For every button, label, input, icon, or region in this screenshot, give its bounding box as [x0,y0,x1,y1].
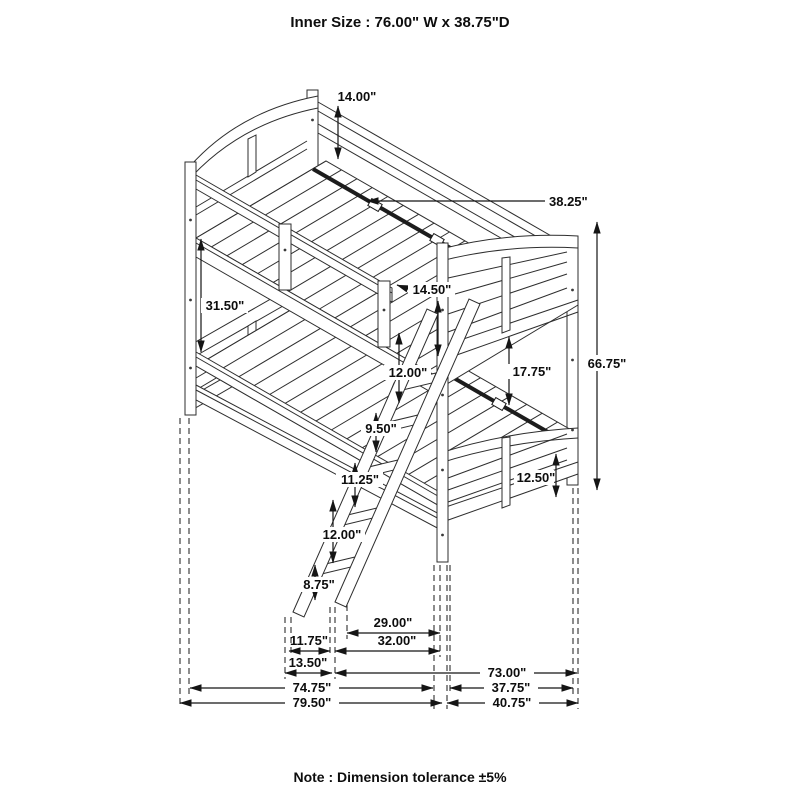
guard-rail-post [279,224,291,290]
svg-text:73.00": 73.00" [488,665,527,680]
dim-deck-depth: 38.25" [549,194,588,209]
guard-rail-post [378,281,390,347]
dim-ladder-step-5: 8.75" [299,577,339,592]
inner-size-title: Inner Size : 76.00" W x 38.75"D [290,14,509,31]
dim-bunk-gap: 31.50" [201,298,248,313]
footboard-stile [502,437,510,508]
dim-ladder-clear-outer: 32.00" [378,633,417,648]
dim-guard-rail-height: 14.50" [408,282,455,297]
svg-text:17.75": 17.75" [513,364,552,379]
dim-ladder-step-1: 12.00" [384,365,431,380]
dim-overall-height: 66.75" [583,355,631,371]
dim-overall-length: 79.50" [285,695,339,710]
dim-depth-inner: 37.75" [484,680,538,695]
dim-ladder-step-2: 9.50" [361,421,401,436]
svg-text:12.00": 12.00" [323,527,362,542]
svg-text:79.50": 79.50" [293,695,332,710]
dim-overall-depth: 40.75" [485,695,539,710]
svg-text:13.50": 13.50" [289,655,328,670]
svg-text:11.75": 11.75" [290,633,328,648]
svg-text:29.00": 29.00" [374,615,413,630]
svg-text:12.50": 12.50" [517,470,556,485]
svg-text:74.75": 74.75" [293,680,332,695]
dim-ladder-depth-outer: 13.50" [289,655,328,670]
dim-back-rail-height: 14.00" [334,89,381,104]
svg-text:12.00": 12.00" [389,365,428,380]
svg-text:14.00": 14.00" [338,89,377,104]
svg-text:8.75": 8.75" [303,577,334,592]
footboard-stile [502,257,510,333]
dim-length-ladder-to-back: 73.00" [480,665,534,680]
headboard-stile [248,135,256,177]
svg-text:37.75": 37.75" [492,680,531,695]
dim-ladder-clear-inner: 29.00" [374,615,413,630]
svg-text:31.50": 31.50" [206,298,245,313]
tolerance-note: Note : Dimension tolerance ±5% [293,769,507,785]
svg-text:66.75": 66.75" [588,356,627,371]
svg-text:14.50": 14.50" [413,282,452,297]
bunk-bed-dimension-diagram: Inner Size : 76.00" W x 38.75"D [0,0,800,800]
svg-text:32.00": 32.00" [378,633,417,648]
svg-text:40.75": 40.75" [493,695,532,710]
dim-length-inner: 74.75" [285,680,339,695]
upper-footboard [437,235,578,390]
svg-text:11.25": 11.25" [341,472,379,487]
dim-ladder-step-4: 12.00" [318,527,365,542]
svg-text:9.50": 9.50" [365,421,396,436]
head-front-post [185,162,196,415]
dim-ladder-step-3: 11.25" [336,472,383,487]
dim-floor-clearance: 12.50" [514,470,555,485]
dim-mattress-clearance: 17.75" [508,364,556,379]
bunk-bed-dimension-diagram-page: Inner Size : 76.00" W x 38.75"D [0,0,800,800]
dim-ladder-depth-inner: 11.75" [290,633,328,648]
bed-structure [185,90,578,617]
svg-text:38.25": 38.25" [549,194,588,209]
